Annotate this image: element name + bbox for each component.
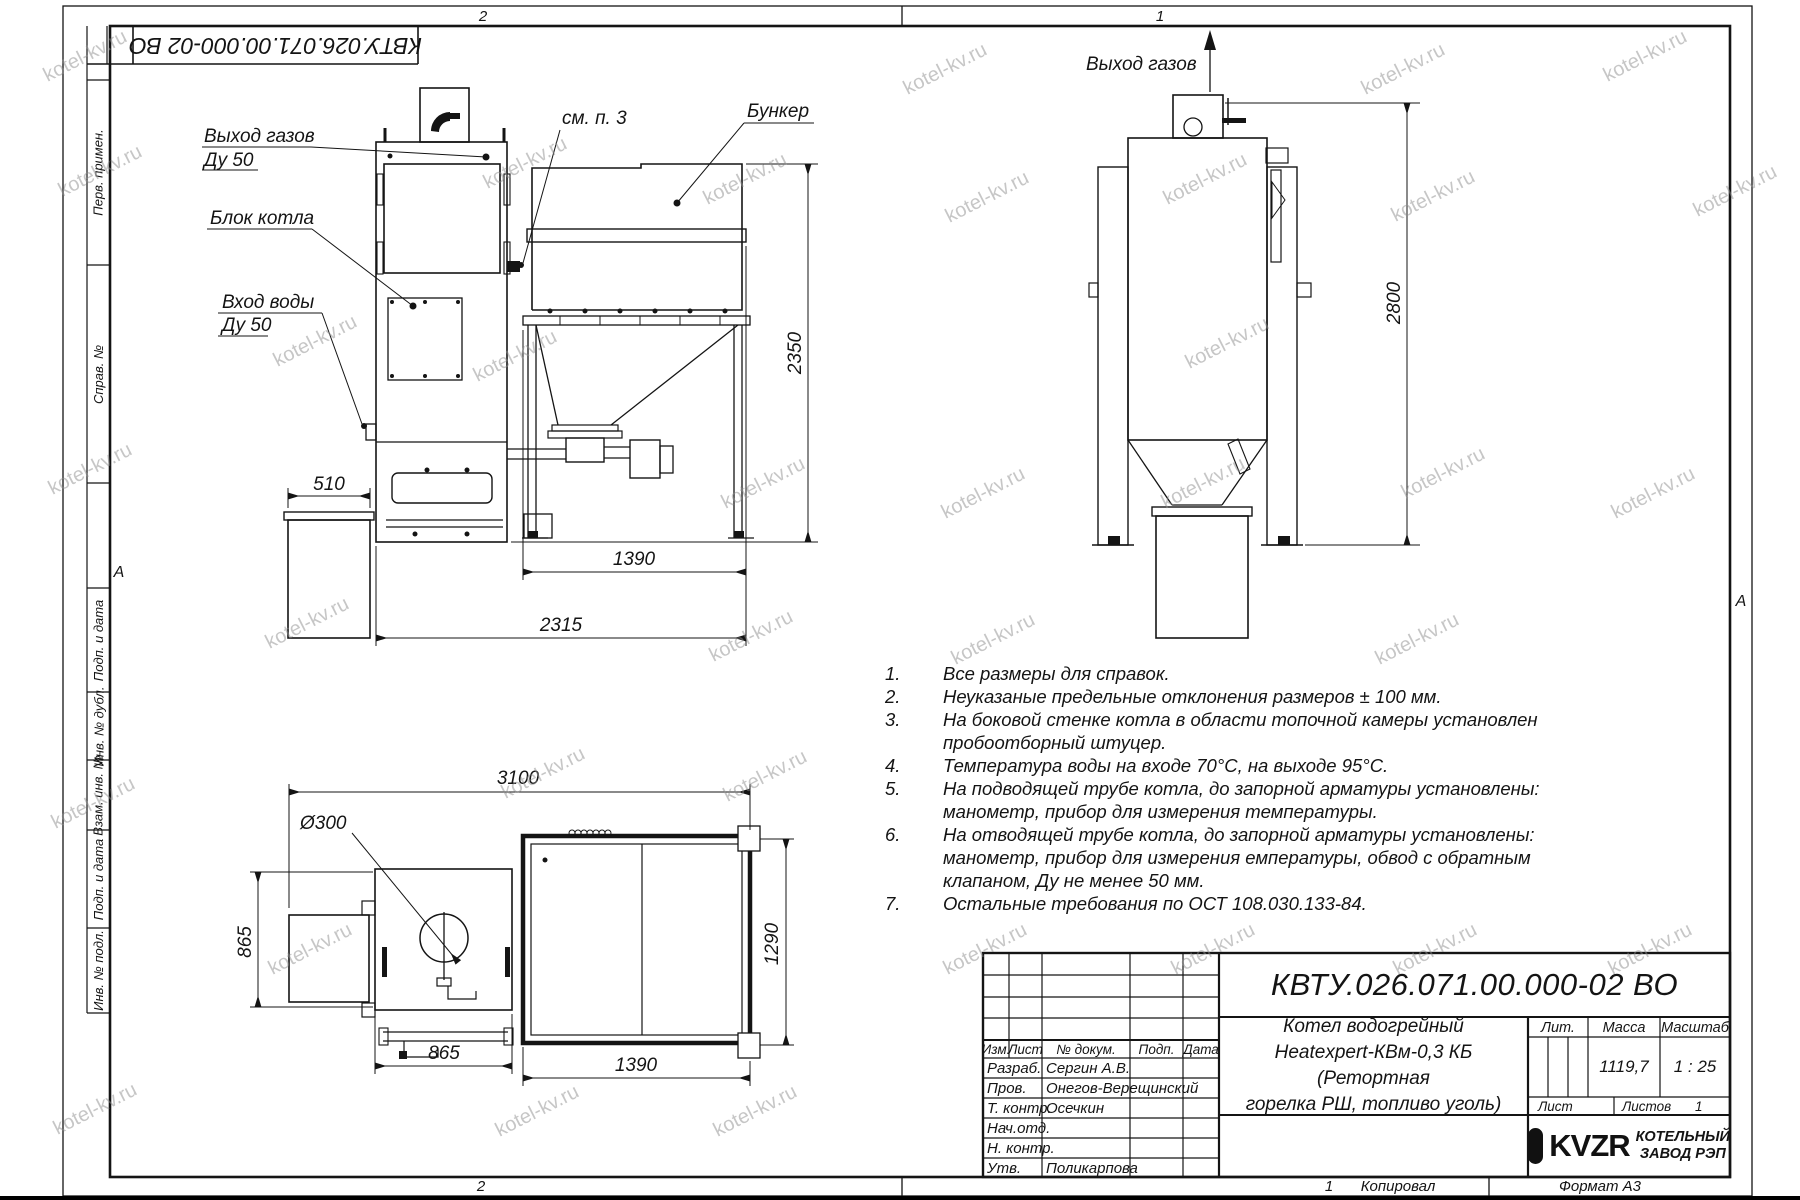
margin-label-sprav-no: Справ. № [87,265,110,483]
note-item: 3.На боковой стенке котла в области топо… [885,708,1545,754]
plan-view [289,826,760,1059]
margin-label-perv-primen: Перв. примен. [87,80,110,265]
margin-label-podp-i-data-2: Подп. и дата [87,830,110,928]
front-label-gas-out: Выход газов [204,126,315,147]
note-item: 2.Неуказаные предельные отклонения разме… [885,685,1545,708]
titleblock-role: Нач.отд. [987,1120,1047,1137]
copied-label: Копировал [1338,1177,1458,1196]
front-dim-1390: 1390 [613,549,656,570]
plan-dim-3100: 3100 [497,768,540,789]
drawing-sheet: Выход газов Ду 50 Блок котла Вход воды Д… [0,0,1800,1200]
note-item: 1.Все размеры для справок. [885,662,1545,685]
titleblock-mass-label: Масса [1588,1018,1660,1037]
titleblock-role: Т. контр. [987,1100,1047,1117]
margin-label-vzam-inv-no: Взам. инв. № [87,760,110,830]
technical-notes: 1.Все размеры для справок. 2.Неуказаные … [885,662,1545,915]
plan-dim-865-v: 865 [235,926,256,958]
titleblock-role: Н. контр. [987,1140,1047,1157]
zone-number-top-left: 2 [463,6,503,26]
front-label-water-in-dn: Ду 50 [220,315,272,336]
titleblock-sheet-label: Лист [1538,1099,1614,1114]
titleblock-mass-value: 1119,7 [1588,1037,1660,1097]
front-label-gas-out-dn: Ду 50 [202,150,254,171]
titleblock-sheets-value: 1 [1695,1099,1725,1114]
titleblock-scale-label: Масштаб [1660,1018,1730,1037]
front-label-water-in: Вход воды [222,292,314,313]
front-label-boiler-block: Блок котла [210,208,314,229]
org-name: КОТЕЛЬНЫЙ ЗАВОД РЭП [1636,1129,1730,1163]
note-item: 6.На отводящей трубе котла, до запорной … [885,823,1545,892]
plan-label-dia300: Ø300 [299,813,347,834]
product-name-line: Heatexpert-КВм-0,3 КБ (Ретортная [1219,1040,1528,1092]
titleblock-role: Утв. [987,1160,1047,1177]
fold-mark-left: А [110,564,128,582]
kvzr-logo-text: KVZR [1549,1128,1629,1164]
titleblock-doc-number: КВТУ.026.071.00.000-02 ВО [1219,953,1730,1017]
titleblock-scale-value: 1 : 25 [1660,1037,1730,1097]
front-label-bunker: Бункер [747,101,809,122]
org-name-line: КОТЕЛЬНЫЙ [1636,1129,1730,1146]
titleblock-header-list: Лист [1009,1040,1042,1058]
titleblock-header-data: Дата [1183,1040,1219,1058]
front-label-see-note: см. п. 3 [562,108,627,129]
product-name-line: Котел водогрейный [1283,1014,1464,1040]
front-view [284,88,754,638]
inverted-stamp: КВТУ.026.071.00.000-02 ВО [133,26,418,64]
zone-number-top-right: 1 [1140,6,1180,26]
front-dim-2350: 2350 [785,331,806,375]
org-name-line: ЗАВОД РЭП [1636,1146,1730,1163]
front-dim-2315: 2315 [539,615,583,636]
margin-label-inv-no-podl: Инв. № подл. [87,928,110,1013]
front-view-leaders [202,123,814,429]
note-item: 5.На подводящей трубе котла, до запорной… [885,777,1545,823]
margin-label-inv-no-dubl: Инв. № дубл. [87,692,110,760]
zone-number-bottom-left: 2 [461,1177,501,1196]
side-label-gas-out: Выход газов [1086,54,1197,75]
titleblock-header-izm: Изм. [983,1040,1009,1058]
side-view [1089,30,1311,638]
titleblock-sheets-label: Листов [1622,1099,1692,1114]
titleblock-lit-label: Лит. [1528,1018,1588,1037]
format-label: Формат А3 [1540,1177,1660,1196]
kvzr-logo-icon [1528,1128,1543,1164]
front-dim-510: 510 [313,474,345,495]
side-dim-2800: 2800 [1384,281,1405,325]
product-name-line: горелка РШ, топливо уголь) [1246,1092,1502,1118]
titleblock-name: Поликарпова [1046,1160,1276,1177]
margin-label-podp-i-data-1: Подп. и дата [87,588,110,692]
note-item: 7.Остальные требования по ОСТ 108.030.13… [885,892,1545,915]
note-item: 4.Температура воды на входе 70°С, на вых… [885,754,1545,777]
titleblock-header-podp: Подп. [1130,1040,1183,1058]
titleblock-role: Разраб. [987,1060,1042,1077]
plan-dim-1390: 1390 [615,1055,658,1076]
sheet-bottom-edge [0,1196,1800,1200]
fold-mark-right: А [1732,593,1750,611]
titleblock-product-name: Котел водогрейный Heatexpert-КВм-0,3 КБ … [1219,1019,1528,1113]
titleblock-org-cell: KVZR КОТЕЛЬНЫЙ ЗАВОД РЭП [1528,1115,1730,1177]
titleblock-role: Пров. [987,1080,1042,1097]
titleblock-header-docnum: № докум. [1042,1040,1130,1058]
inverted-doc-number: КВТУ.026.071.00.000-02 ВО [129,32,422,59]
plan-dim-1290: 1290 [762,922,783,965]
plan-dim-865-h: 865 [428,1043,460,1064]
